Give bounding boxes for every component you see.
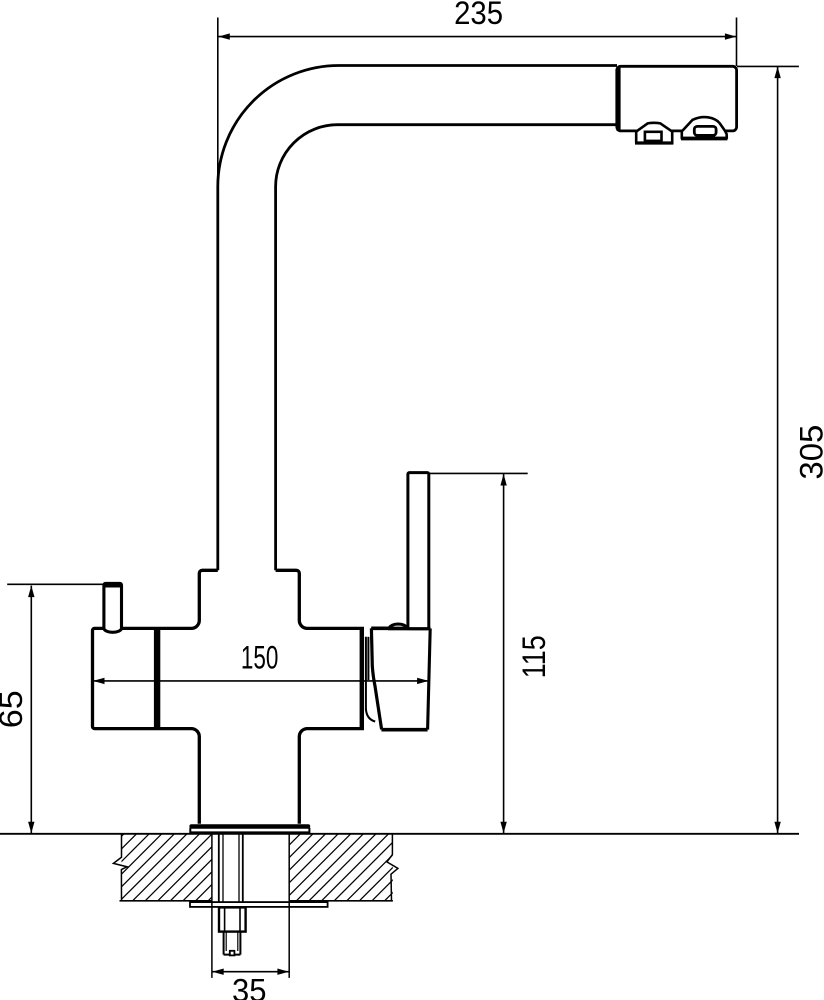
svg-text:65: 65 — [0, 690, 29, 728]
svg-text:35: 35 — [232, 973, 267, 1000]
svg-text:305: 305 — [794, 425, 824, 480]
svg-text:235: 235 — [454, 0, 503, 31]
svg-text:150: 150 — [241, 640, 279, 676]
svg-text:115: 115 — [516, 635, 552, 678]
